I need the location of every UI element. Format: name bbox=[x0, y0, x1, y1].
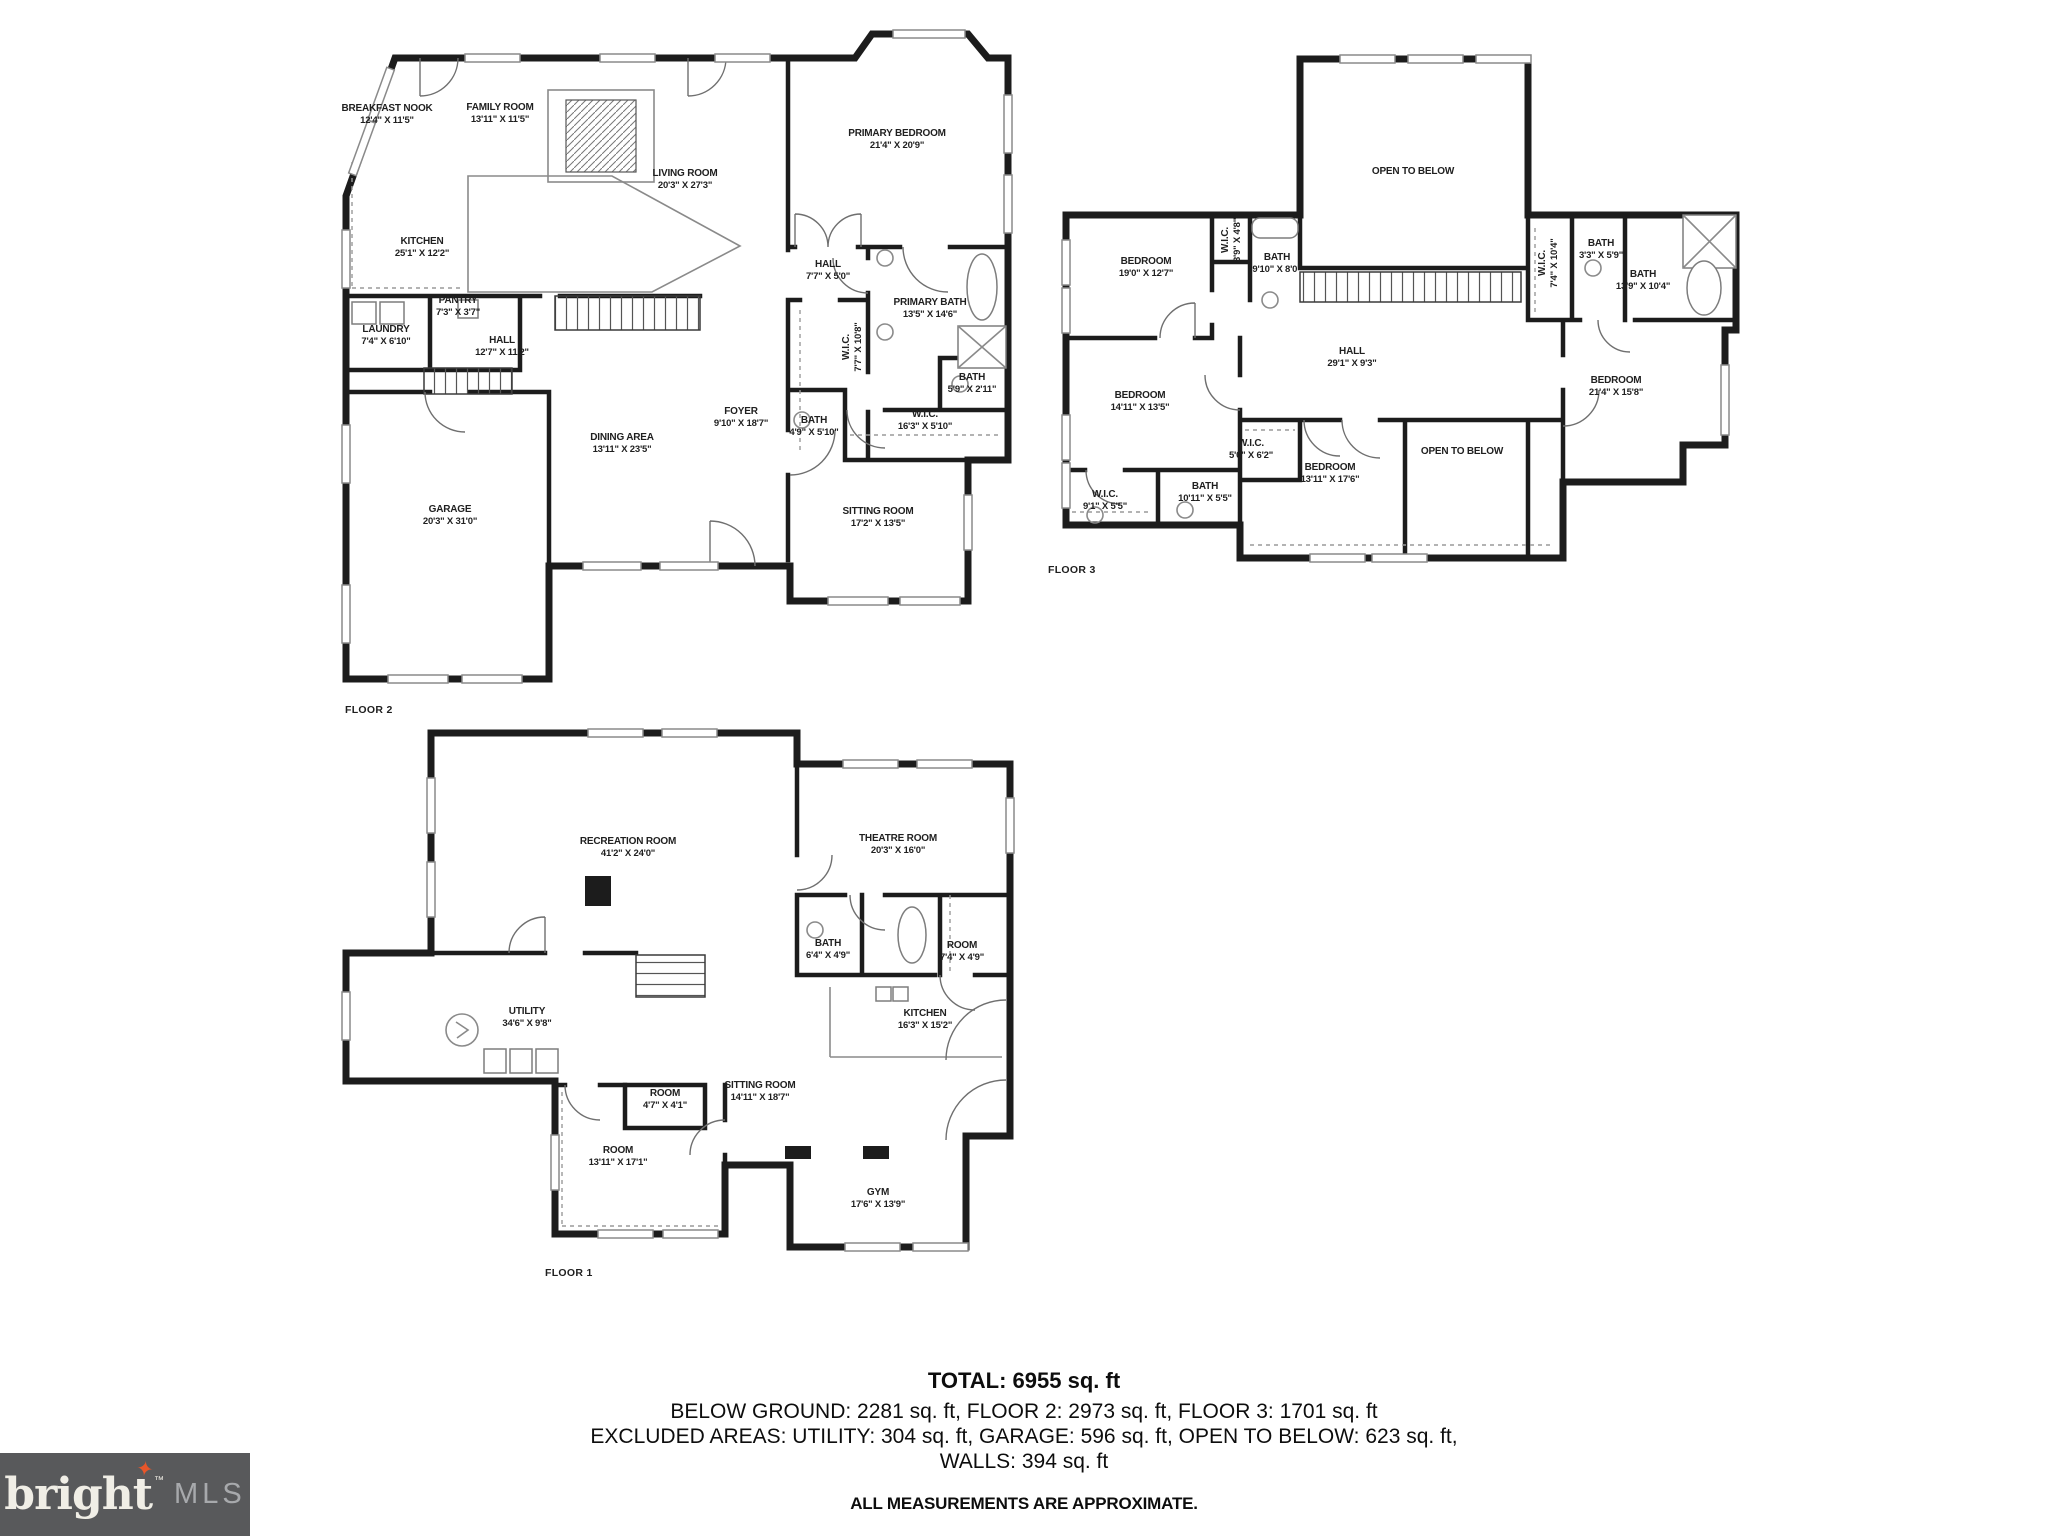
room-label: ROOM7'4" X 4'9" bbox=[940, 940, 984, 964]
room-label: PRIMARY BEDROOM21'4" X 20'9" bbox=[848, 128, 946, 152]
floor-plan-drawing bbox=[0, 0, 2048, 1536]
room-label: W.I.C.5'0" X 6'2" bbox=[1229, 438, 1273, 462]
room-label: FOYER9'10" X 18'7" bbox=[714, 406, 768, 430]
floor-3-plan bbox=[1062, 55, 1736, 562]
excluded-areas-text: EXCLUDED AREAS: UTILITY: 304 sq. ft, GAR… bbox=[0, 1425, 2048, 1449]
logo-mls-text: MLS bbox=[174, 1480, 246, 1509]
room-label: SITTING ROOM17'2" X 13'5" bbox=[843, 506, 914, 530]
room-label: W.I.C.7'4" X 10'4" bbox=[1537, 238, 1561, 287]
room-label: KITCHEN16'3" X 15'2" bbox=[898, 1008, 952, 1032]
room-label: GYM17'6" X 13'9" bbox=[851, 1187, 905, 1211]
room-label: BREAKFAST NOOK12'4" X 11'5" bbox=[341, 103, 432, 127]
room-label: HALL12'7" X 11'2" bbox=[475, 335, 529, 359]
room-label: RECREATION ROOM41'2" X 24'0" bbox=[580, 836, 676, 860]
room-label: ROOM4'7" X 4'1" bbox=[643, 1088, 687, 1112]
room-label: HALL7'7" X 5'0" bbox=[806, 259, 850, 283]
room-label: OPEN TO BELOW bbox=[1421, 446, 1503, 458]
room-label: UTILITY34'6" X 9'8" bbox=[502, 1006, 551, 1030]
room-label: BATH9'10" X 8'0" bbox=[1252, 252, 1301, 276]
room-label: BEDROOM13'11" X 17'6" bbox=[1301, 462, 1360, 486]
room-label: PANTRY7'3" X 3'7" bbox=[436, 295, 480, 319]
room-label: BATH13'9" X 10'4" bbox=[1616, 269, 1670, 293]
floor-plan-sheet: BREAKFAST NOOK12'4" X 11'5"FAMILY ROOM13… bbox=[0, 0, 2048, 1536]
bright-mls-logo: bright ✦ ™ MLS bbox=[0, 1453, 250, 1536]
room-label: BEDROOM21'4" X 15'8" bbox=[1589, 375, 1643, 399]
bright-mls-logo-inner: bright ✦ ™ MLS bbox=[0, 1453, 250, 1536]
room-label: W.I.C.16'3" X 5'10" bbox=[898, 409, 952, 433]
room-label: W.I.C.7'7" X 10'8" bbox=[841, 322, 865, 371]
trademark-symbol: ™ bbox=[154, 1475, 164, 1486]
room-label: HALL29'1" X 9'3" bbox=[1327, 346, 1376, 370]
floor-areas-text: BELOW GROUND: 2281 sq. ft, FLOOR 2: 2973… bbox=[0, 1400, 2048, 1424]
room-label: BATH4'9" X 5'10" bbox=[789, 415, 838, 439]
room-label: W.I.C.3'9" X 4'8" bbox=[1220, 218, 1244, 262]
room-label: BATH5'9" X 2'11" bbox=[948, 372, 997, 396]
walls-area-text: WALLS: 394 sq. ft bbox=[0, 1450, 2048, 1474]
floor-label-floor-3: FLOOR 3 bbox=[1048, 564, 1096, 576]
floor-3-windows bbox=[1062, 55, 1729, 562]
room-label: KITCHEN25'1" X 12'2" bbox=[395, 236, 449, 260]
room-label: W.I.C.9'1" X 5'5" bbox=[1083, 489, 1127, 513]
star-icon: ✦ bbox=[135, 1458, 155, 1481]
room-label: THEATRE ROOM20'3" X 16'0" bbox=[859, 833, 937, 857]
room-label: SITTING ROOM14'11" X 18'7" bbox=[725, 1080, 796, 1104]
floor-label-floor-1: FLOOR 1 bbox=[545, 1267, 593, 1279]
floor-1-plan bbox=[342, 729, 1014, 1251]
logo-brand-text: bright bbox=[4, 1473, 152, 1517]
disclaimer-text: ALL MEASUREMENTS ARE APPROXIMATE. bbox=[0, 1494, 2048, 1514]
area-summary: TOTAL: 6955 sq. ft BELOW GROUND: 2281 sq… bbox=[0, 1368, 2048, 1514]
room-label: ROOM13'11" X 17'1" bbox=[589, 1145, 648, 1169]
room-label: LAUNDRY7'4" X 6'10" bbox=[361, 324, 410, 348]
room-label: BATH6'4" X 4'9" bbox=[806, 938, 850, 962]
room-label: GARAGE20'3" X 31'0" bbox=[423, 504, 477, 528]
floor-label-floor-2: FLOOR 2 bbox=[345, 704, 393, 716]
room-label: LIVING ROOM20'3" X 27'3" bbox=[652, 168, 717, 192]
total-area-text: TOTAL: 6955 sq. ft bbox=[0, 1368, 2048, 1394]
room-label: DINING AREA13'11" X 23'5" bbox=[590, 432, 654, 456]
room-label: BEDROOM19'0" X 12'7" bbox=[1119, 256, 1173, 280]
room-label: BATH3'3" X 5'9" bbox=[1579, 238, 1623, 262]
room-label: FAMILY ROOM13'11" X 11'5" bbox=[466, 102, 533, 126]
room-label: OPEN TO BELOW bbox=[1372, 166, 1454, 178]
room-label: BATH10'11" X 5'5" bbox=[1178, 481, 1232, 505]
room-label: PRIMARY BATH13'5" X 14'6" bbox=[894, 297, 967, 321]
room-label: BEDROOM14'11" X 13'5" bbox=[1111, 390, 1170, 414]
